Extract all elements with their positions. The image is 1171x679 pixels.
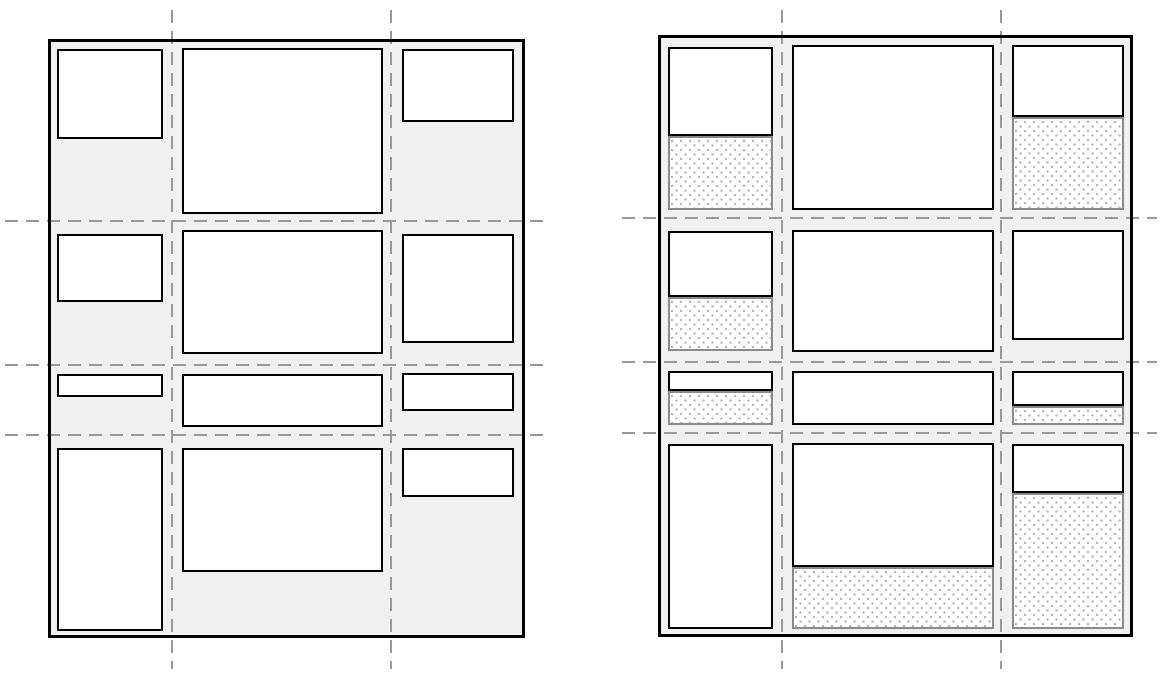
left-grid-item-r1c2 (182, 48, 383, 214)
left-grid-item-r4c3 (402, 448, 514, 497)
diagram-stage (0, 0, 1171, 679)
right-grid-item-r2c1 (668, 231, 773, 297)
right-grid-item-r1c1 (668, 47, 773, 136)
left-grid-item-r4c2 (182, 448, 383, 572)
right-grid-item-r4c3 (1012, 444, 1124, 493)
right-grid-empty-cell-space-r3c3 (1012, 406, 1124, 425)
right-grid-item-r1c3 (1012, 45, 1124, 117)
right-grid-item-r3c3 (1012, 371, 1124, 406)
right-grid-item-r4c1 (668, 444, 773, 629)
left-grid-item-r2c3 (402, 234, 514, 343)
right-grid-item-r4c2 (792, 443, 994, 567)
left-grid-item-r3c2 (182, 374, 383, 427)
right-grid-empty-cell-space-r3c1 (668, 391, 773, 425)
right-grid-empty-cell-space-r1c3 (1012, 117, 1124, 210)
right-grid-item-r3c2 (792, 371, 994, 425)
right-grid-empty-cell-space-r4c3 (1012, 493, 1124, 629)
left-grid-item-r1c3 (402, 49, 514, 122)
right-grid-item-r1c2 (792, 45, 994, 210)
right-grid-item-r2c3 (1012, 230, 1124, 340)
left-grid-item-r2c1 (57, 234, 163, 302)
right-grid-item-r2c2 (792, 230, 994, 352)
left-grid-item-r2c2 (182, 230, 383, 354)
left-grid-item-r4c1 (57, 448, 163, 631)
right-grid-empty-cell-space-r4c2 (792, 567, 994, 629)
left-grid-item-r3c1 (57, 374, 163, 397)
left-grid-item-r3c3 (402, 373, 514, 411)
right-grid-item-r3c1 (668, 371, 773, 391)
left-grid-item-r1c1 (57, 49, 163, 139)
right-grid-empty-cell-space-r1c1 (668, 136, 773, 210)
right-grid-empty-cell-space-r2c1 (668, 297, 773, 351)
